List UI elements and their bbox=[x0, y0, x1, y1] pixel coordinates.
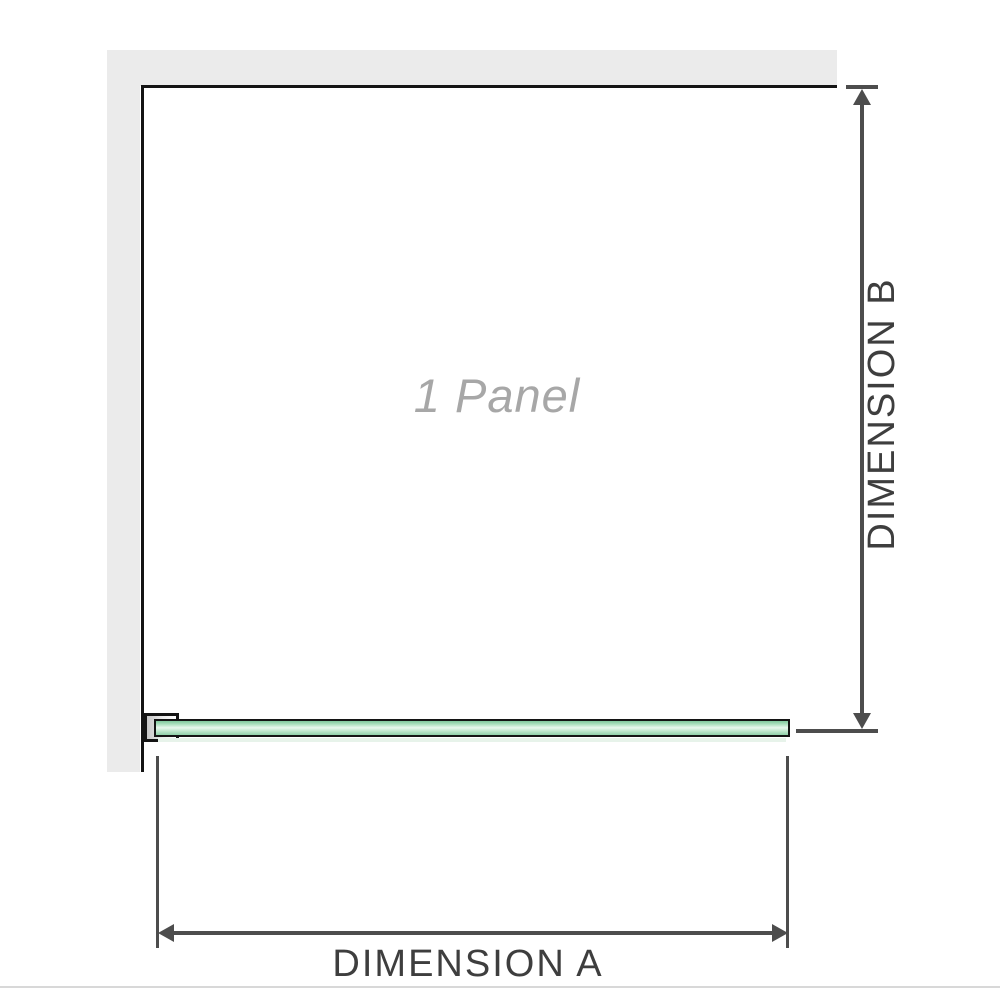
page-divider-line bbox=[0, 986, 1000, 988]
dimension-a-label: DIMENSION A bbox=[268, 942, 668, 986]
panel-count-label: 1 Panel bbox=[337, 366, 657, 426]
dimension-a-line bbox=[172, 931, 773, 935]
wall-left bbox=[107, 50, 140, 772]
dimension-a-left-extension-line bbox=[156, 756, 159, 948]
dimension-b-label: DIMENSION B bbox=[860, 214, 904, 614]
dimension-b-arrow-up-icon bbox=[853, 89, 871, 105]
glass-panel-bar bbox=[154, 719, 790, 737]
dimension-a-right-extension-line bbox=[786, 756, 789, 948]
shower-area-outline bbox=[141, 85, 837, 772]
shower-panel-diagram: 1 Panel DIMENSION B DIMENSION A bbox=[0, 0, 1000, 1000]
dimension-b-bottom-tick bbox=[796, 729, 878, 733]
dimension-a-arrow-right-icon bbox=[772, 924, 788, 942]
glass-panel-shadow bbox=[158, 738, 786, 742]
dimension-b-arrow-down-icon bbox=[853, 713, 871, 729]
wall-top bbox=[107, 50, 837, 86]
dimension-a-arrow-left-icon bbox=[158, 924, 174, 942]
